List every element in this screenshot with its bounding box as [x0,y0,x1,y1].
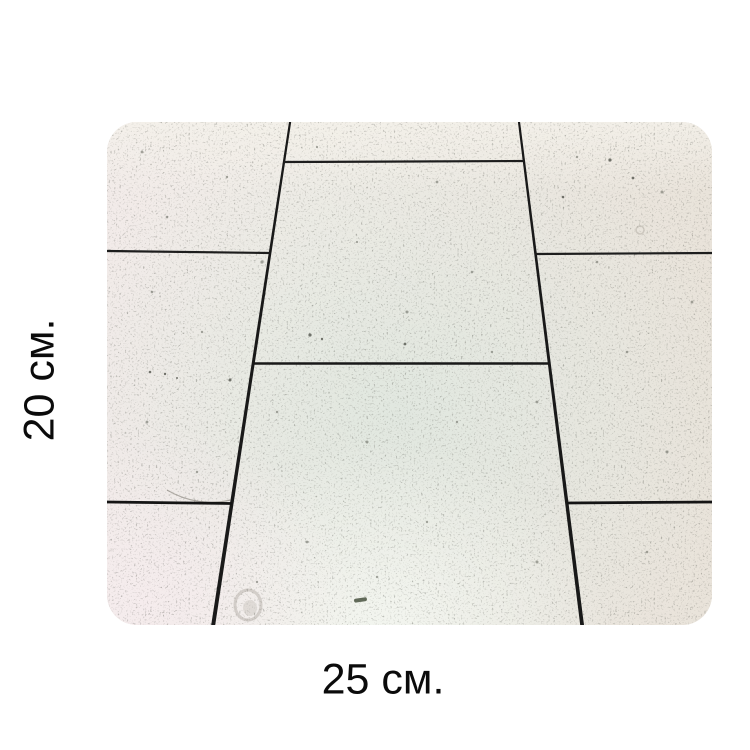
grout-line-center-top [284,161,524,162]
tile-photo [107,122,712,625]
tile-photo-image [107,122,712,625]
width-dimension-label: 25 см. [322,656,445,705]
grout-line-right-row1 [535,253,712,254]
grout-line-right-row2 [567,502,712,503]
speckle-texture [107,122,712,625]
grout-line-left-row2 [107,502,232,504]
height-dimension-label: 20 см. [16,319,65,442]
page: 20 см. 25 см. [0,0,750,750]
